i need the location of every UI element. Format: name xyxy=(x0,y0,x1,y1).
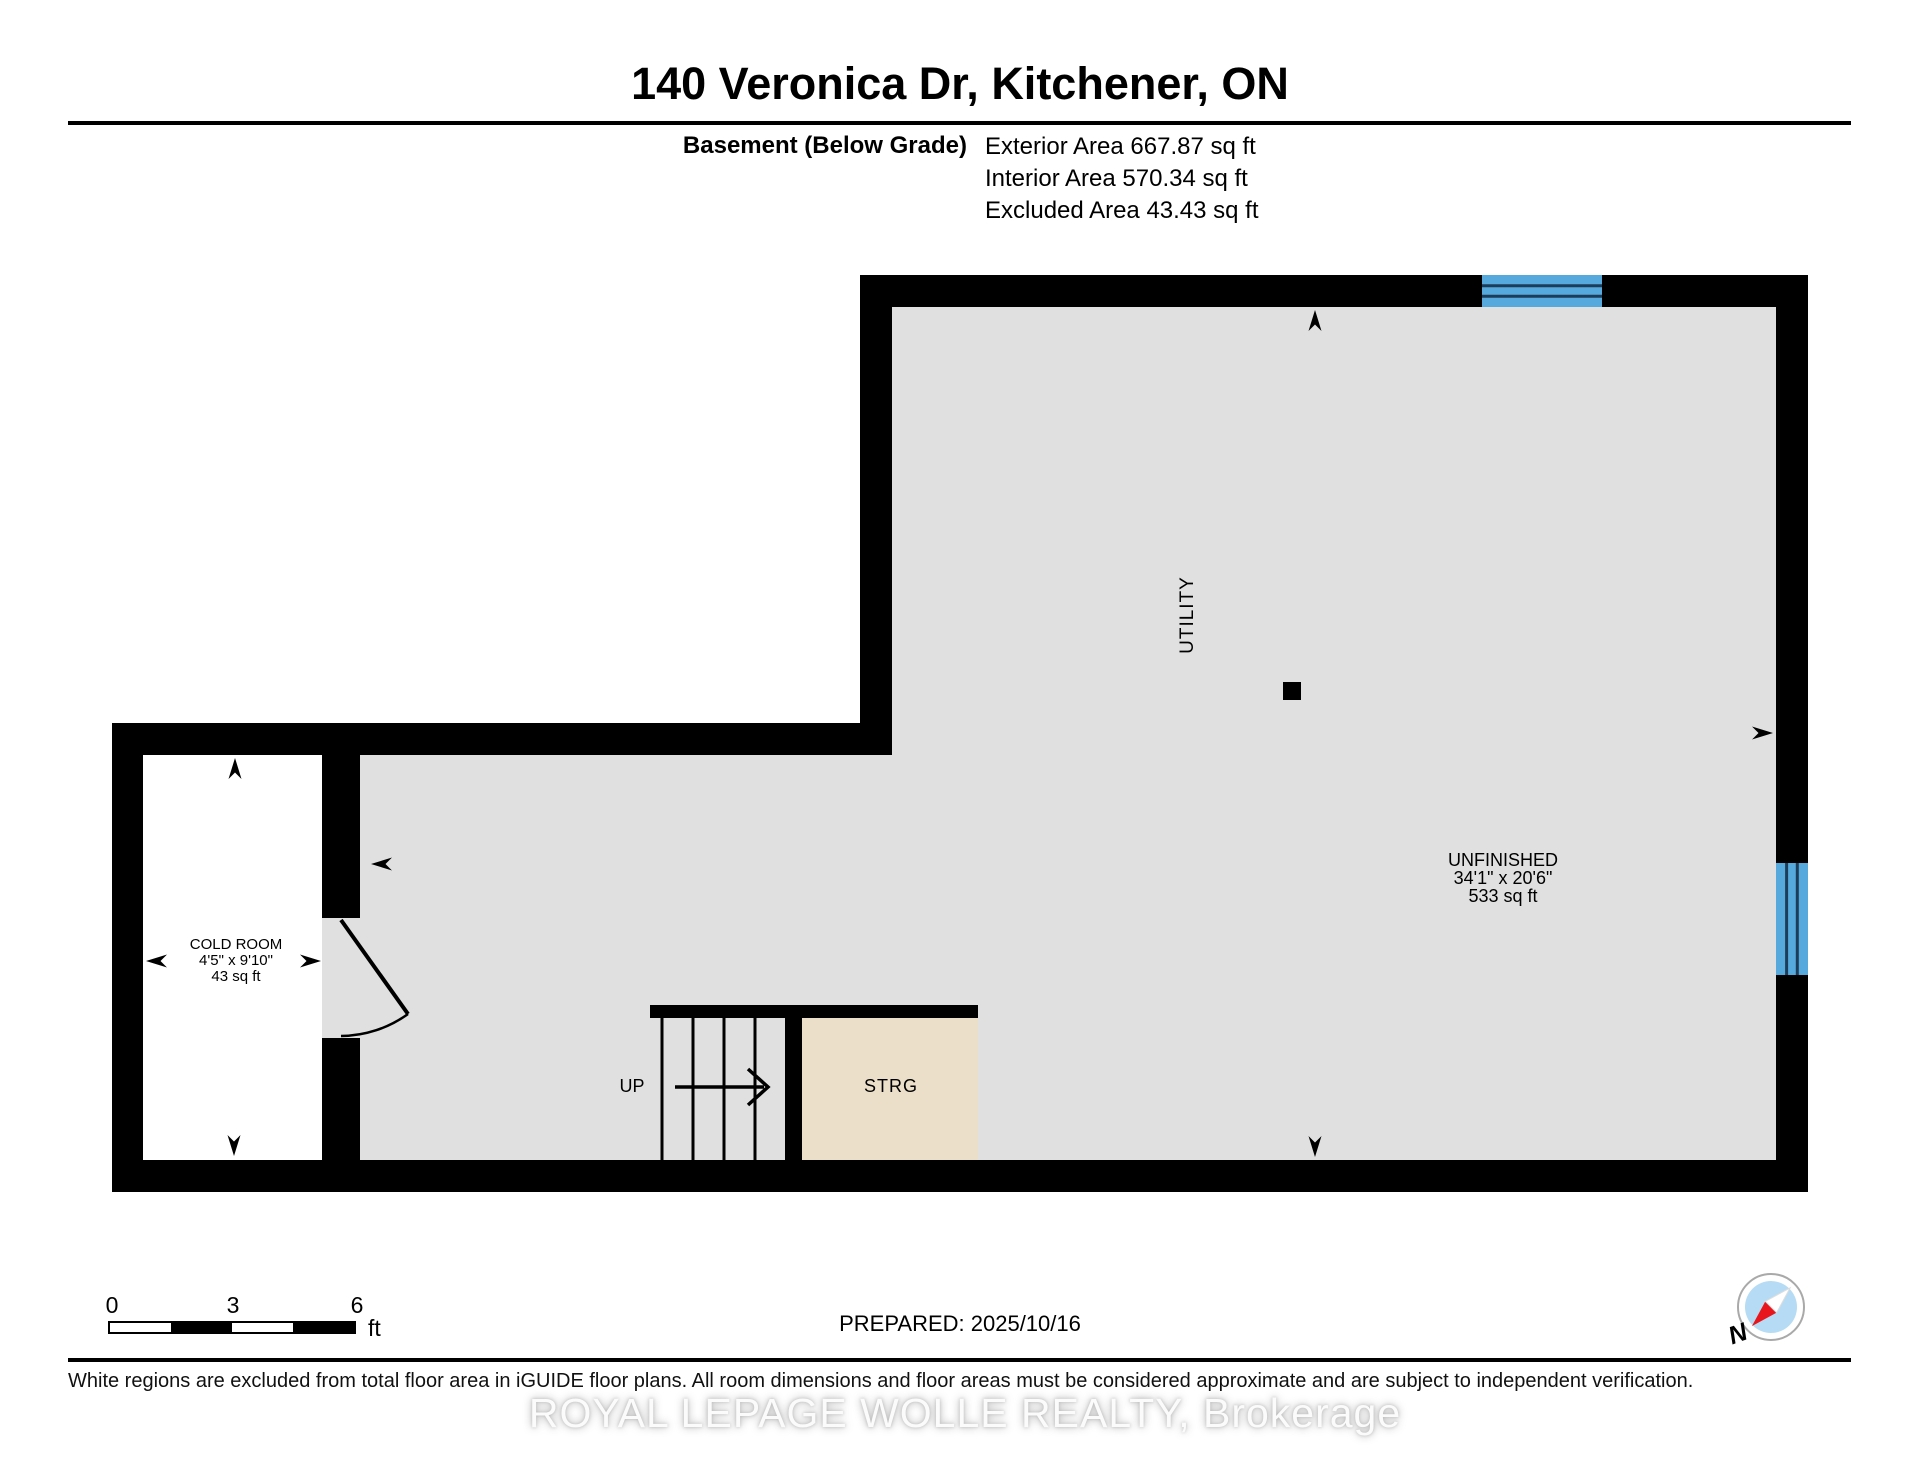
wing-floor-area xyxy=(360,755,1776,1160)
unfinished-area: 533 sq ft xyxy=(1378,887,1628,905)
room-label-cold-room: COLD ROOM 4'5" x 9'10" 43 sq ft xyxy=(111,937,361,985)
floor-plan-page: 140 Veronica Dr, Kitchener, ON Basement … xyxy=(0,0,1920,1484)
unfinished-name: UNFINISHED xyxy=(1378,851,1628,869)
brokerage-watermark: ROYAL LEPAGE WOLLE REALTY, Brokerage xyxy=(0,1390,1920,1437)
room-label-unfinished: UNFINISHED 34'1" x 20'6" 533 sq ft xyxy=(1378,851,1628,905)
prepared-date: PREPARED: 2025/10/16 xyxy=(0,1311,1920,1337)
window-top-icon xyxy=(1482,275,1602,307)
wall-stairs-half xyxy=(650,1005,978,1018)
window-right-icon xyxy=(1776,863,1808,975)
cold-room-area: 43 sq ft xyxy=(111,969,361,985)
wall-bottom xyxy=(112,1160,1808,1192)
footer-divider-rule xyxy=(68,1358,1851,1362)
wall-coldroom-lower xyxy=(322,1038,360,1160)
floor-plan-drawing xyxy=(0,0,1920,1484)
post-marker xyxy=(1283,682,1301,700)
stairs-up-label: UP xyxy=(582,1076,682,1097)
cold-room-dimensions: 4'5" x 9'10" xyxy=(111,953,361,969)
room-label-utility: UTILITY xyxy=(1177,535,1199,695)
unfinished-dimensions: 34'1" x 20'6" xyxy=(1378,869,1628,887)
cold-room-name: COLD ROOM xyxy=(111,937,361,953)
room-label-storage: STRG xyxy=(791,1076,991,1097)
wall-top xyxy=(860,275,1808,307)
wall-right xyxy=(1776,275,1808,1192)
wall-coldroom-upper xyxy=(322,755,360,918)
wall-main-left xyxy=(860,275,892,755)
wall-wing-top xyxy=(112,723,892,755)
